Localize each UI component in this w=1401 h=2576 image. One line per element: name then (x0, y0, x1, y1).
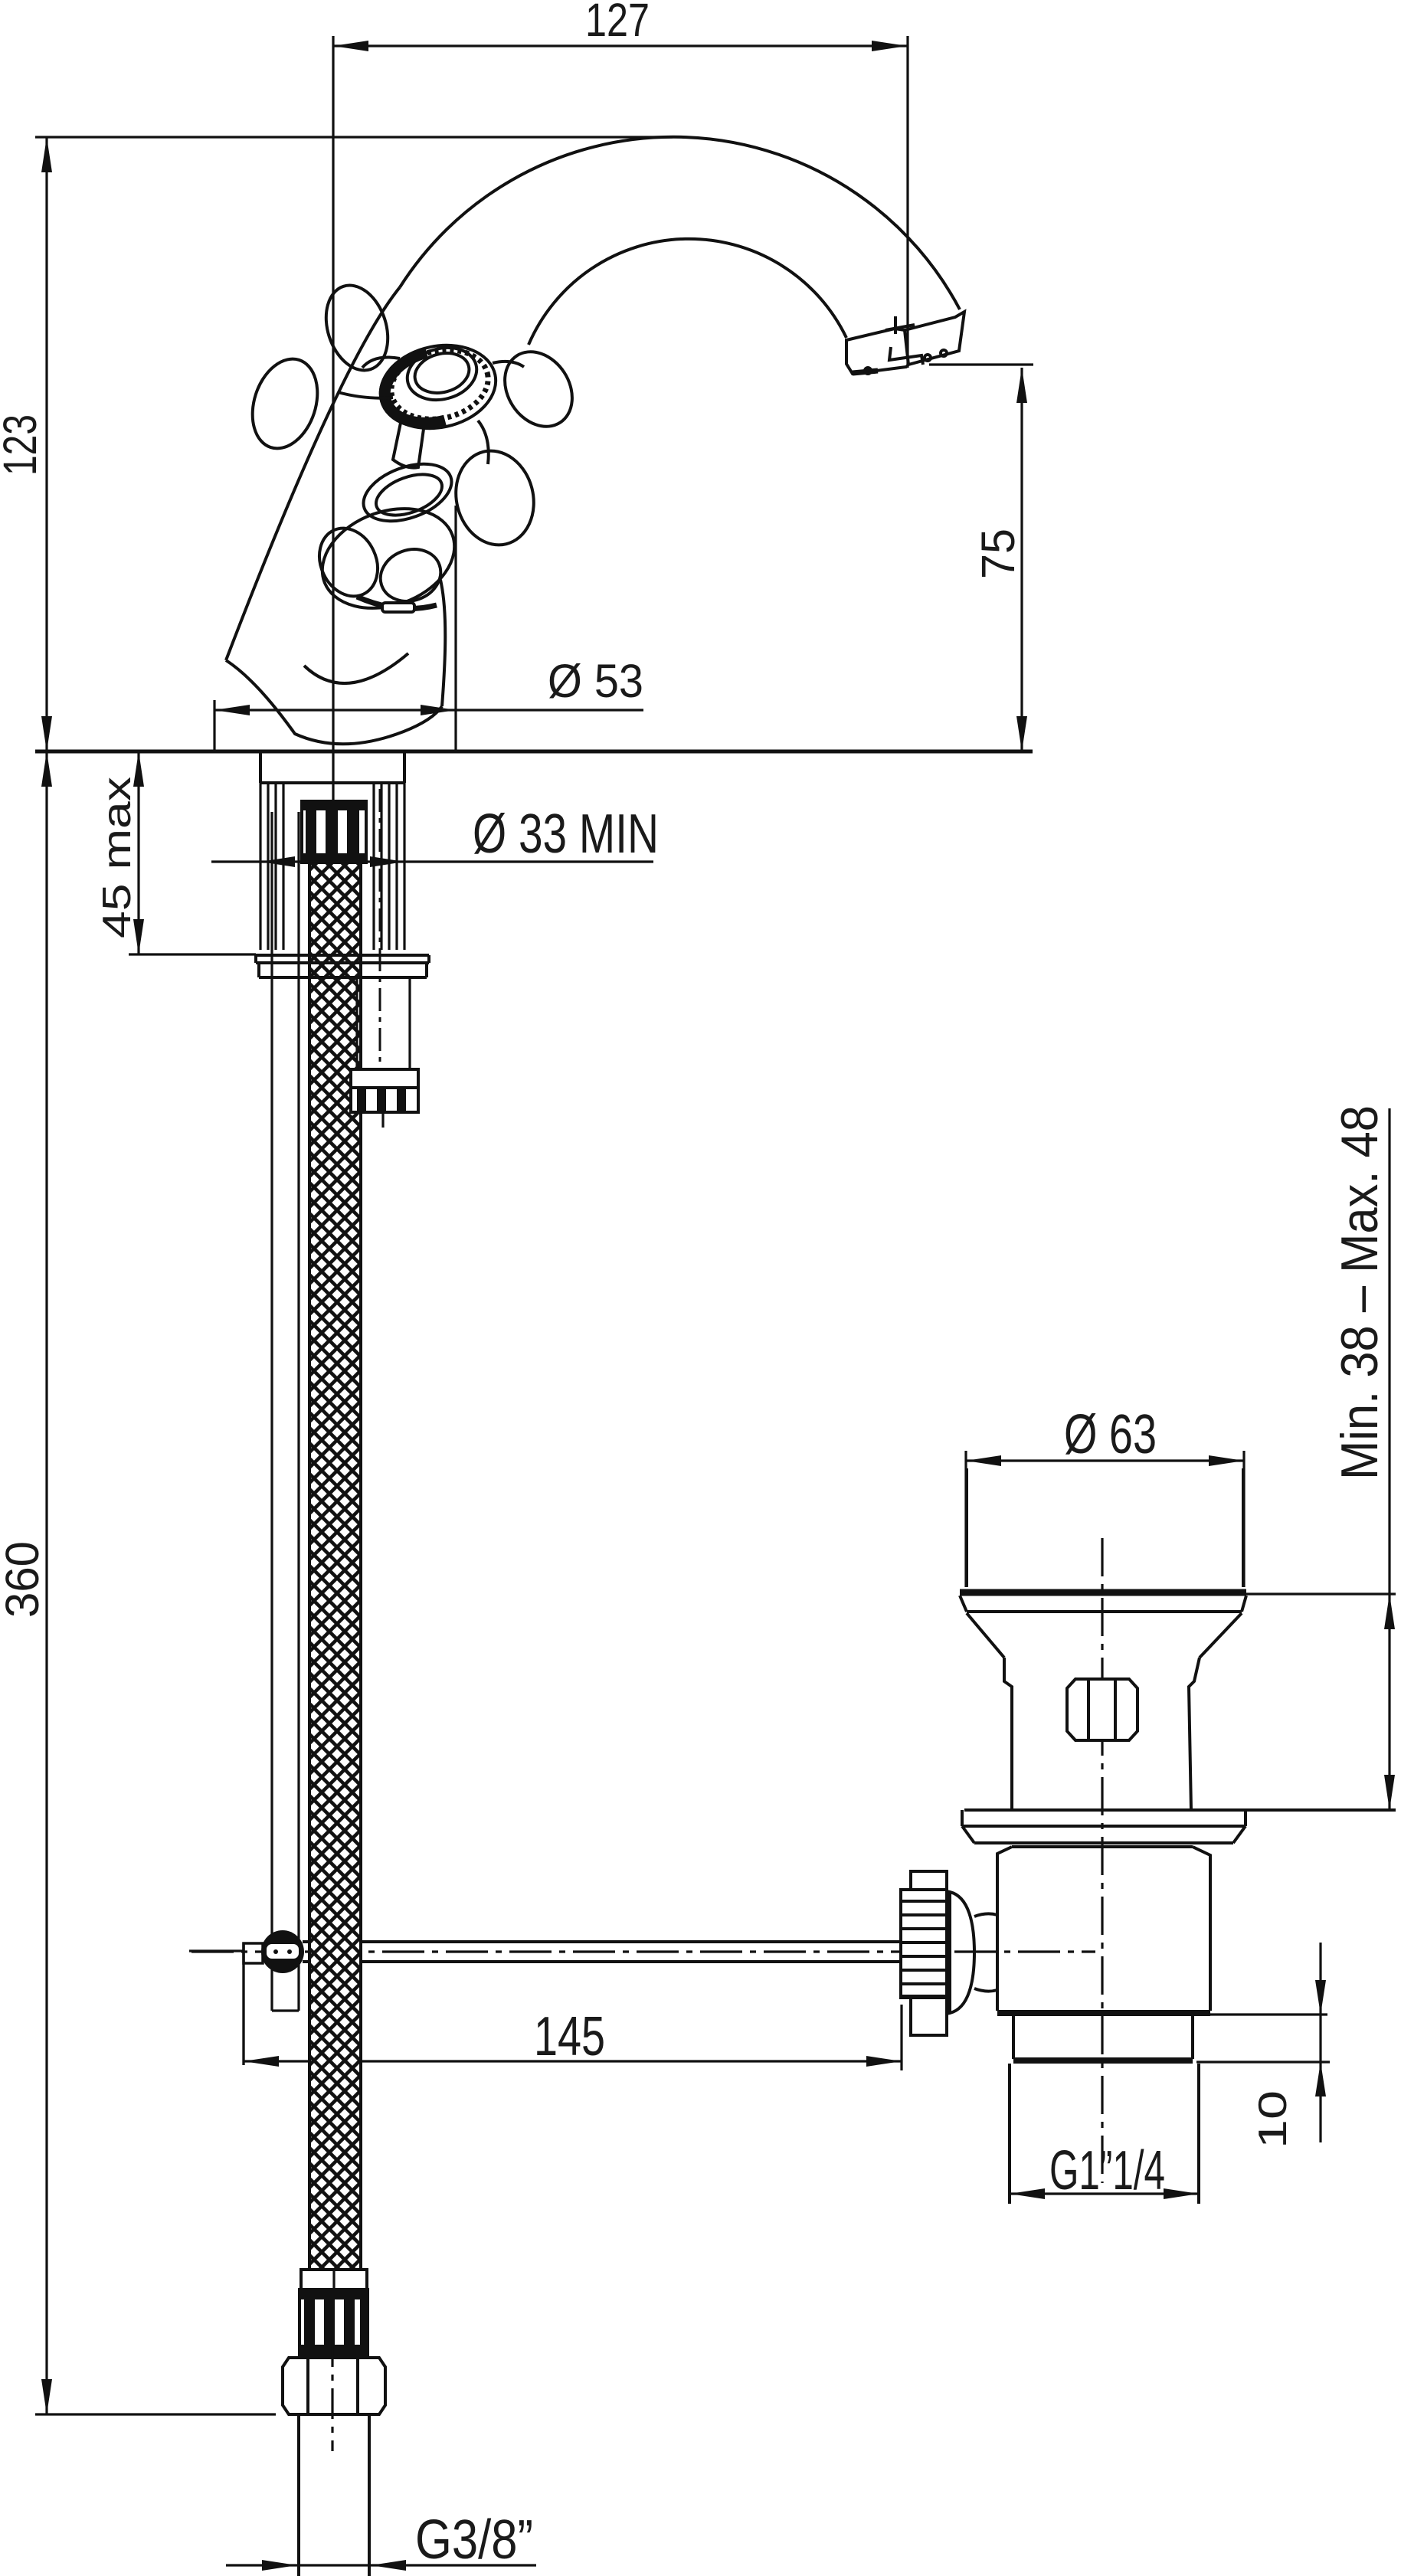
svg-text:45 max: 45 max (95, 777, 139, 938)
svg-text:Ø 63: Ø 63 (1064, 1404, 1157, 1465)
svg-text:Min. 38 – Max. 48: Min. 38 – Max. 48 (1331, 1105, 1389, 1480)
svg-text:127: 127 (585, 0, 650, 46)
svg-text:Ø 53: Ø 53 (548, 655, 643, 707)
svg-text:360: 360 (0, 1541, 48, 1618)
svg-text:G3/8”: G3/8” (415, 2509, 533, 2571)
svg-text:G1”1/4: G1”1/4 (1049, 2140, 1165, 2201)
svg-text:123: 123 (0, 414, 46, 476)
svg-text:10: 10 (1251, 2090, 1295, 2149)
svg-text:Ø 33 MIN: Ø 33 MIN (473, 804, 659, 865)
svg-text:145: 145 (534, 2006, 605, 2067)
svg-text:75: 75 (972, 529, 1024, 579)
